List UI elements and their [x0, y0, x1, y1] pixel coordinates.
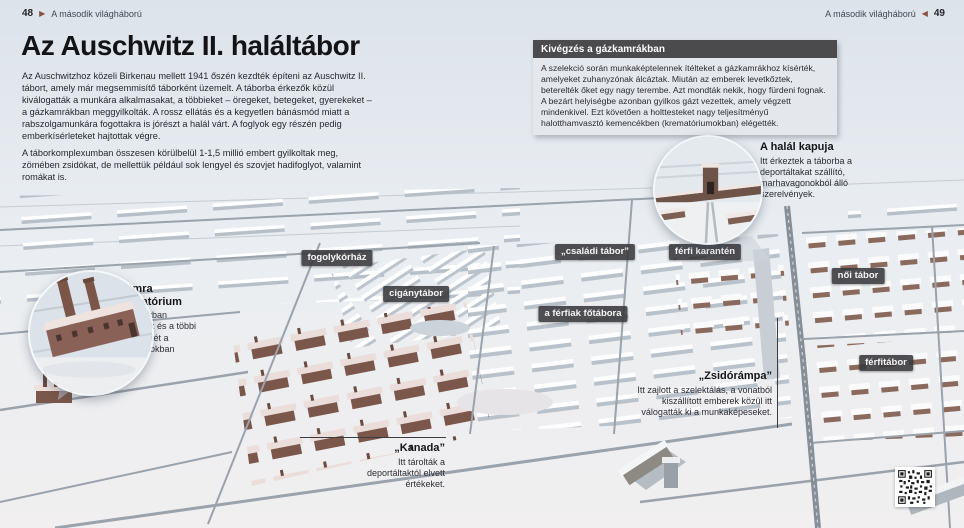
- map-label-noi-tabor: női tábor: [832, 268, 885, 284]
- map-label-fogolykorhaz: fogolykórház: [301, 250, 372, 266]
- callout-title: „Kanada”: [345, 442, 445, 455]
- crematorium-illustration: [30, 272, 152, 394]
- page-number-right: 49: [934, 8, 945, 19]
- leader-line-ramp: [777, 318, 778, 428]
- qr-code: [895, 467, 935, 507]
- inset-photo-death-gate: [653, 135, 763, 245]
- intro-text: Az Auschwitzhoz közeli Birkenau mellett …: [22, 70, 376, 187]
- callout-body: Itt érkeztek a táborba a deportáltakat s…: [760, 156, 868, 201]
- intro-paragraph-1: Az Auschwitzhoz közeli Birkenau mellett …: [22, 70, 376, 143]
- callout-jewish-ramp: „Zsidórámpa” Itt zajlott a szelektálás, …: [630, 370, 772, 418]
- map-label-ferfitabor: férfitábor: [859, 355, 913, 371]
- infobox-body: A szelekció során munkaképtelennek ítélt…: [533, 58, 837, 135]
- qr-code-icon: [897, 469, 933, 505]
- infobox-gas-chambers: Kivégzés a gázkamrákban A szelekció sorá…: [533, 40, 837, 135]
- running-head-left: 48 ▶ A második világháború: [22, 8, 142, 19]
- infobox-title: Kivégzés a gázkamrákban: [533, 40, 837, 58]
- running-head-right: A második világháború ◀ 49: [825, 8, 945, 19]
- callout-body: Itt zajlott a szelektálás, a vonatból ki…: [630, 385, 772, 419]
- triangle-right-icon: ▶: [39, 10, 45, 18]
- page-title: Az Auschwitz II. haláltábor: [21, 30, 360, 62]
- death-gate-illustration: [655, 137, 761, 243]
- callout-title: A halál kapuja: [760, 141, 868, 154]
- intro-paragraph-2: A táborkomplexumban összesen körülbelül …: [22, 147, 376, 183]
- map-label-csaladi-tabor: „családi tábor”: [555, 244, 635, 260]
- triangle-left-icon: ◀: [922, 10, 928, 18]
- leader-line-kanada: [300, 437, 446, 438]
- map-label-ferfi-karanten: férfi karantén: [669, 244, 741, 260]
- section-title: A második világháború: [51, 9, 142, 19]
- page-number-left: 48: [22, 8, 33, 19]
- inset-photo-crematorium: [28, 270, 154, 396]
- pond: [410, 320, 470, 336]
- callout-kanada: „Kanada” Itt tárolták a deportáltaktól e…: [345, 442, 445, 490]
- snow-patch: [457, 389, 553, 415]
- section-title: A második világháború: [825, 9, 916, 19]
- callout-body: Itt tárolták a deportáltaktól elvett ért…: [345, 457, 445, 491]
- book-spread: 48 ▶ A második világháború A második vil…: [0, 0, 964, 528]
- map-label-ciganytabor: cigánytábor: [383, 286, 449, 302]
- callout-death-gate: A halál kapuja Itt érkeztek a táborba a …: [760, 141, 868, 201]
- callout-title: „Zsidórámpa”: [630, 370, 772, 383]
- map-label-ferfiak-fotabora: a férfiak főtábora: [538, 306, 627, 322]
